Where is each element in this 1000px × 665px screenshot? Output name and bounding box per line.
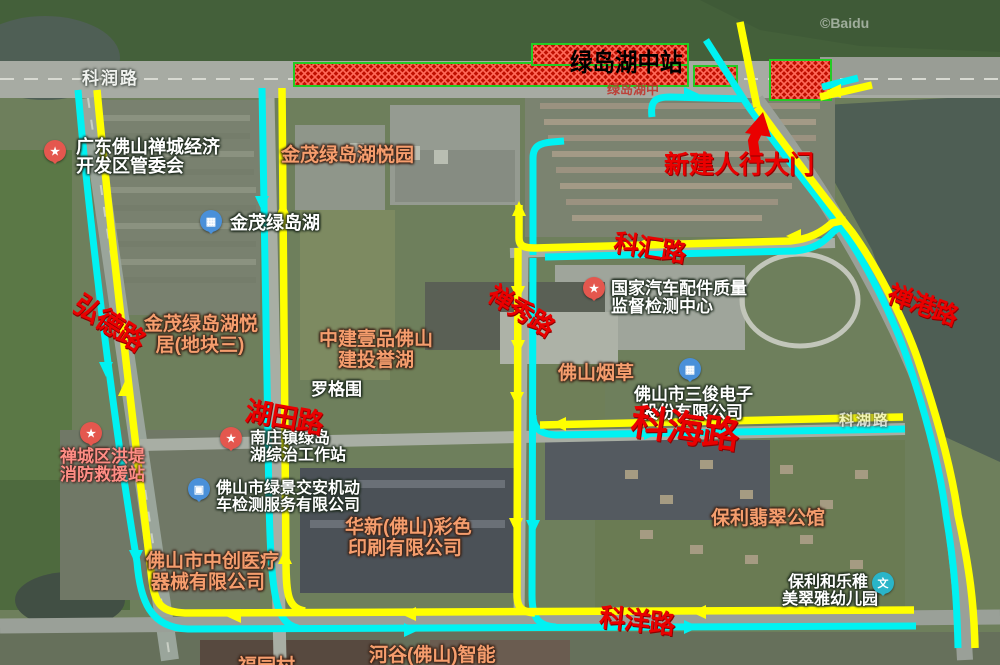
- star-icon: ★: [50, 145, 60, 158]
- poi-label-xiaofang: 禅城区洪堤消防救援站: [60, 448, 145, 485]
- poi-label-jinmao-yueju: 金茂绿岛湖悦居(地块三): [144, 315, 256, 356]
- gate-annotation-label: 新建人行大门: [664, 152, 814, 179]
- poi-label-guojia: 国家汽车配件质量监督检测中心: [611, 280, 747, 317]
- poi-pin-baoli-kindergarten[interactable]: 文: [872, 572, 894, 594]
- poi-label-zhongjian: 中建壹品佛山建投誉湖: [318, 330, 434, 371]
- building-icon: ▦: [685, 363, 695, 376]
- baidu-watermark: ©Baidu: [820, 15, 869, 31]
- poi-label-yancao: 佛山烟草: [558, 364, 634, 385]
- poi-label-lvjing: 佛山市绿景交安机动车检测服务有限公司: [216, 480, 360, 515]
- poi-label-luogewei: 罗格围: [311, 381, 362, 399]
- poi-pin-lvjing[interactable]: ▣: [188, 478, 210, 500]
- poi-label-huaxin: 华新(佛山)彩色印刷有限公司: [345, 518, 465, 559]
- poi-pin-xiaofang[interactable]: ★: [80, 422, 102, 444]
- star-icon: ★: [589, 282, 599, 295]
- poi-pin-sanjun[interactable]: ▦: [679, 358, 701, 380]
- poi-pin-zongzhi[interactable]: ★: [220, 427, 242, 449]
- poi-pin-jinmao-lake[interactable]: ▦: [200, 210, 222, 232]
- base-road-label-kehu: 科湖路: [839, 413, 890, 429]
- poi-pin-guanweihui[interactable]: ★: [44, 140, 66, 162]
- poi-pin-guojia[interactable]: ★: [583, 277, 605, 299]
- station-annotation-label: 绿岛湖中站: [570, 50, 683, 77]
- poi-label-baoli-kindergarten: 保利和乐稚美翠雅幼儿园: [782, 574, 874, 609]
- car-icon: ▣: [194, 483, 204, 496]
- poi-label-baoli-mansion: 保利翡翠公馆: [711, 509, 825, 530]
- star-icon: ★: [226, 432, 236, 445]
- base-station-label-fragment: 绿岛湖中: [607, 83, 659, 97]
- building-icon: ▦: [206, 215, 216, 228]
- poi-label-hegu: 河谷(佛山)智能: [369, 646, 496, 665]
- base-road-label-kerun: 科润路: [82, 70, 139, 88]
- poi-label-guanweihui: 广东佛山禅城经济开发区管委会: [76, 138, 220, 177]
- poi-label-jinmao-lake: 金茂绿岛湖: [230, 214, 320, 233]
- school-icon: 文: [878, 575, 889, 591]
- poi-label-fuyuan: 福园村: [238, 657, 295, 665]
- poi-label-jinmao-yueyuan: 金茂绿岛湖悦园: [281, 146, 414, 167]
- satellite-map[interactable]: 科润路 科湖路 绿岛湖中 ©Baidu 罗格围 河谷(佛山)智能 福园村 ★ 广…: [0, 0, 1000, 665]
- poi-label-zhongchuang: 佛山市中创医疗器械有限公司: [146, 552, 270, 593]
- star-icon: ★: [86, 427, 96, 440]
